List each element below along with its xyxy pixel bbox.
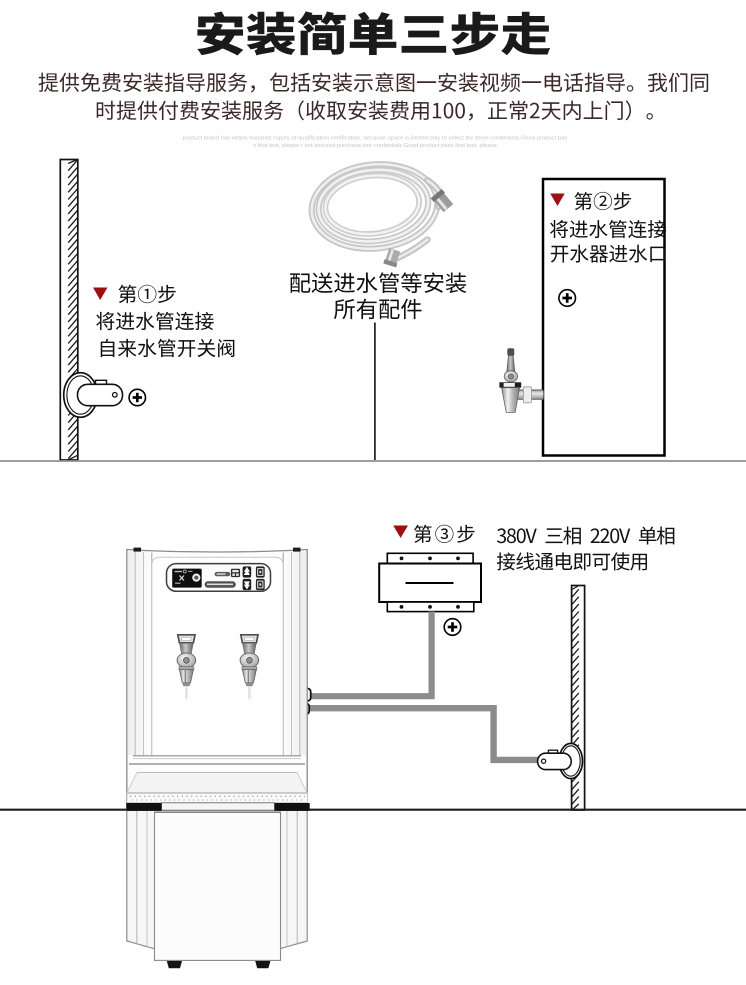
- svg-text:product brand has nearly hundr: product brand has nearly hundred copies …: [183, 136, 568, 142]
- svg-text:s that test, please r est assu: s that test, please r est assured purcha…: [253, 143, 497, 149]
